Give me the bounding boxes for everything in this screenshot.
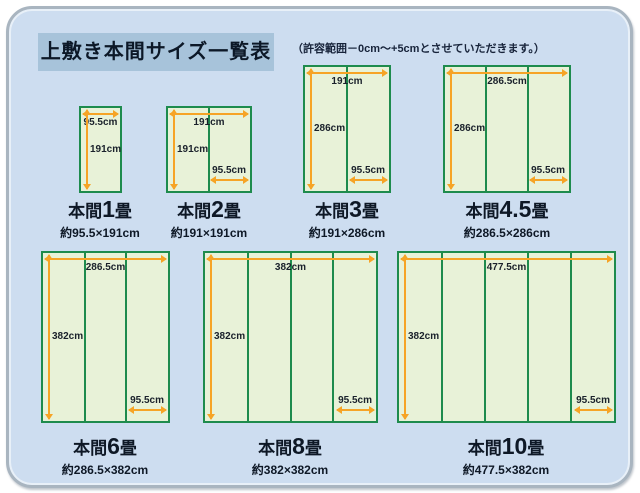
height-measure-label: 382cm	[408, 332, 439, 342]
diagram-caption: 本間8畳 約382×382cm	[190, 436, 390, 478]
mat-seam	[570, 253, 572, 421]
mat-width-measure-line	[129, 409, 166, 411]
mat-rect: 477.5cm 382cm 95.5cm	[397, 251, 616, 423]
width-measure-line	[401, 258, 612, 260]
name-number: 2	[211, 196, 224, 222]
name-unit: 畳	[120, 439, 137, 458]
diagram-caption: 本間10畳 約477.5×382cm	[406, 436, 606, 478]
name-prefix: 本間	[73, 439, 107, 458]
mat-width-measure-line	[575, 409, 612, 411]
size-chart-canvas: 上敷き本間サイズ一覧表 （許容範囲－0cm～+5cmとさせていただきます。） 9…	[0, 0, 640, 493]
mat-seam	[84, 253, 86, 421]
diagram-size-text: 約286.5×286cm	[407, 224, 607, 241]
name-number: 8	[292, 433, 305, 459]
mat-width-measure-label: 95.5cm	[351, 166, 385, 176]
mat-width-measure-label: 95.5cm	[531, 166, 565, 176]
height-measure-label: 382cm	[52, 332, 83, 342]
mat-rect: 191cm 286cm 95.5cm	[303, 65, 391, 193]
width-measure-line	[45, 258, 166, 260]
name-prefix: 本間	[466, 202, 500, 221]
height-measure-line	[404, 255, 406, 419]
height-measure-label: 286cm	[314, 124, 345, 134]
height-measure-line	[310, 69, 312, 189]
mat-rect: 191cm 191cm 95.5cm	[166, 106, 252, 193]
width-measure-label: 286.5cm	[445, 77, 569, 87]
mat-rect: 95.5cm 191cm	[79, 106, 122, 193]
name-prefix: 本間	[68, 202, 102, 221]
mat-seam	[332, 253, 334, 421]
name-unit: 畳	[305, 439, 322, 458]
name-unit: 畳	[362, 202, 379, 221]
diagram-name: 本間4.5畳	[407, 199, 607, 222]
tolerance-note: （許容範囲－0cm～+5cmとさせていただきます。）	[292, 40, 545, 56]
name-prefix: 本間	[177, 202, 211, 221]
diagram-name: 本間10畳	[406, 436, 606, 459]
diagram-size-text: 約477.5×382cm	[406, 461, 606, 478]
name-number: 4.5	[500, 196, 532, 222]
width-measure-line	[207, 258, 374, 260]
mat-seam	[247, 253, 249, 421]
mat-rect: 382cm 382cm 95.5cm	[203, 251, 378, 423]
mat-width-measure-label: 95.5cm	[338, 396, 372, 406]
diagram-caption: 本間4.5畳 約286.5×286cm	[407, 199, 607, 241]
diagram-name: 本間6畳	[5, 436, 205, 459]
mat-width-measure-line	[530, 179, 567, 181]
width-measure-line	[307, 72, 387, 74]
mat-width-measure-line	[337, 409, 374, 411]
width-measure-label: 191cm	[168, 118, 250, 128]
page-title-text: 上敷き本間サイズ一覧表	[41, 41, 271, 63]
mat-seam	[290, 253, 292, 421]
width-measure-label: 477.5cm	[399, 263, 614, 273]
mat-rect: 286.5cm 286cm 95.5cm	[443, 65, 571, 193]
mat-width-measure-line	[211, 179, 248, 181]
mat-width-measure-label: 95.5cm	[212, 166, 246, 176]
mat-width-measure-line	[350, 179, 387, 181]
name-number: 10	[502, 433, 528, 459]
name-unit: 畳	[224, 202, 241, 221]
height-measure-label: 191cm	[177, 145, 208, 155]
mat-seam	[441, 253, 443, 421]
height-measure-line	[86, 110, 88, 189]
name-number: 3	[349, 196, 362, 222]
height-measure-line	[173, 110, 175, 189]
width-measure-label: 286.5cm	[43, 263, 168, 273]
mat-rect: 286.5cm 382cm 95.5cm	[41, 251, 170, 423]
width-measure-line	[170, 113, 248, 115]
height-measure-line	[48, 255, 50, 419]
diagram-caption: 本間6畳 約286.5×382cm	[5, 436, 205, 478]
diagram-size-text: 約382×382cm	[190, 461, 390, 478]
height-measure-line	[450, 69, 452, 189]
name-number: 6	[107, 433, 120, 459]
height-measure-label: 286cm	[454, 124, 485, 134]
width-measure-label: 382cm	[205, 263, 376, 273]
name-prefix: 本間	[258, 439, 292, 458]
height-measure-label: 382cm	[214, 332, 245, 342]
page-title: 上敷き本間サイズ一覧表	[38, 33, 274, 71]
height-measure-line	[210, 255, 212, 419]
name-prefix: 本間	[315, 202, 349, 221]
name-unit: 畳	[527, 439, 544, 458]
mat-width-measure-label: 95.5cm	[130, 396, 164, 406]
mat-seam	[484, 253, 486, 421]
name-unit: 畳	[531, 202, 548, 221]
mat-seam	[125, 253, 127, 421]
width-measure-line	[447, 72, 567, 74]
mat-seam	[527, 253, 529, 421]
width-measure-label: 191cm	[305, 77, 389, 87]
height-measure-label: 191cm	[90, 145, 121, 155]
diagram-name: 本間8畳	[190, 436, 390, 459]
name-prefix: 本間	[468, 439, 502, 458]
diagram-size-text: 約286.5×382cm	[5, 461, 205, 478]
mat-width-measure-label: 95.5cm	[576, 396, 610, 406]
